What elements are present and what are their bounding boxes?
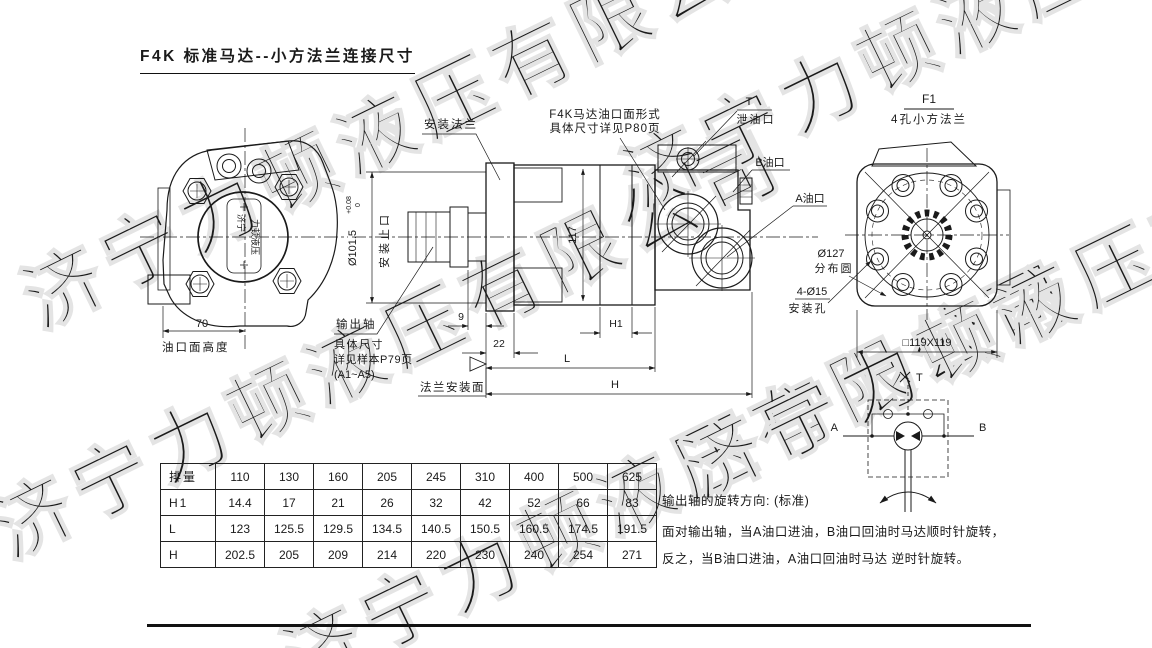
hex-bolt [275,175,303,200]
flange-face-label: 法兰安装面 [420,380,485,394]
table-cell: 26 [363,490,412,516]
flange-view: F1 4孔小方法兰 Ø127 分布圆 4-Ø15 安装孔 [789,92,1011,358]
table-cell: 625 [608,464,657,490]
table-cell: 254 [559,542,608,568]
table-cell: 191.5 [608,516,657,542]
body-lug-bottom [514,268,562,302]
dim-70-label: 油口面高度 [162,340,230,354]
table-row: H 202.5 205 209 214 220 230 240 254 271 [161,542,657,568]
front-view: 济宁 力顿液压 70 油口面高度 [140,128,348,354]
row-label: H1 [161,490,216,516]
leader-line [727,206,827,257]
dim-22-value: 22 [493,338,505,350]
bottom-rule [147,624,1031,627]
dim-9-value: 9 [458,311,464,323]
table-cell: 205 [265,542,314,568]
dim-H-value: H [611,379,619,391]
table-cell: 123 [216,516,265,542]
dim-pilot-label: 安装止口 [377,212,391,268]
rotation-notes-line2: 反之，当B油口进油，A油口回油时马达 逆时针旋转。 [662,546,1042,573]
table-cell: 205 [363,464,412,490]
mount-flange-label: 安装法兰 [424,117,478,131]
right-tab [997,190,1010,285]
b-port-label: B油口 [755,155,784,169]
table-row: 排量 110 130 160 205 245 310 400 500 625 [161,464,657,490]
table-cell: 174.5 [559,516,608,542]
t-port-letter: T [746,96,753,108]
schematic-a-label: A [831,422,839,434]
port-face-note-line1: F4K马达油口面形式 [549,107,661,121]
table-cell: 52 [510,490,559,516]
table-cell: 125.5 [265,516,314,542]
page-title: F4K 标准马达--小方法兰连接尺寸 [140,44,415,74]
table-cell: 230 [461,542,510,568]
shaft-note-line3: 详见样本P79页 [334,352,413,366]
dimension-table: 排量 110 130 160 205 245 310 400 500 625 H… [160,463,657,568]
table-cell: 245 [412,464,461,490]
table-cell: 110 [216,464,265,490]
dim-pilot-tol-upper: +0.08 [346,196,353,214]
hex-bolt [273,269,301,294]
schematic-b-label: B [979,422,986,434]
screw [253,165,266,178]
row-label: H [161,542,216,568]
table-cell: 202.5 [216,542,265,568]
table-cell: 160.5 [510,516,559,542]
table-cell: 150.5 [461,516,510,542]
port-block-top [658,145,736,172]
extension-line [468,270,486,330]
flow-arrow-icon [911,431,920,441]
screw [217,154,241,178]
leader-line [849,276,886,296]
dim-H1-value: H1 [609,318,623,330]
flange-code: F1 [922,92,936,106]
table-cell: 220 [412,542,461,568]
rotation-notes-heading: 输出轴的旋转方向: (标准) [662,488,1042,515]
dim-70-value: 70 [196,318,208,330]
row-label: L [161,516,216,542]
table-cell: 66 [559,490,608,516]
leader-line [733,170,790,192]
rotation-notes: 输出轴的旋转方向: (标准) 面对输出轴，当A油口进油，B油口回油时马达顺时针旋… [662,488,1042,573]
t-port-label: 泄油口 [737,112,776,126]
hex-bolt [183,179,211,204]
body-lug-top [514,168,562,202]
dim-pilot-tol-lower: 0 [355,203,362,207]
datum-triangle-icon [470,357,486,371]
t-port-cross [676,147,700,171]
holes-label: 安装孔 [789,301,828,315]
plugged-port-icon [900,372,910,382]
body-seams [600,165,632,305]
side-port [148,275,190,304]
table-cell: 140.5 [412,516,461,542]
nameplate-brand-city: 济宁 [236,214,247,232]
shaft-note-line4: (A1~A5) [334,369,375,381]
side-view: Ø101.5 +0.08 0 安装止口 117 安装法兰 F4K马达油口面形式 … [334,96,827,398]
table-row: H1 14.4 17 21 26 32 42 52 66 83 [161,490,657,516]
dim-117-value: 117 [567,226,579,244]
schematic-t-label: T [916,372,923,384]
schematic-box [868,400,948,477]
dim-L-value: L [564,353,570,365]
table-cell: 240 [510,542,559,568]
table-cell: 130 [265,464,314,490]
table-cell: 400 [510,464,559,490]
junction-dot [906,412,910,416]
extension-line [486,313,514,358]
screw [247,159,271,183]
table-cell: 209 [314,542,363,568]
table-cell: 17 [265,490,314,516]
top-plate [872,142,976,166]
table-cell: 134.5 [363,516,412,542]
table-cell: 21 [314,490,363,516]
motor-body [514,165,655,305]
rotation-notes-line1: 面对输出轴，当A油口进油，B油口回油时马达顺时针旋转， [662,519,1042,546]
leader-line [422,134,500,180]
a-port-label: A油口 [795,191,824,205]
bolt-circle-label: 分布圆 [815,262,854,275]
flange-subtitle: 4孔小方法兰 [891,112,967,126]
screw [223,160,236,173]
flow-arrow-icon [896,431,905,441]
row-label: 排量 [161,464,216,490]
table-cell: 271 [608,542,657,568]
shaft-note-line1: 输出轴 [336,317,377,331]
table-cell: 129.5 [314,516,363,542]
table-cell: 14.4 [216,490,265,516]
shaft-note-line2: 具体尺寸 [334,337,384,351]
holes-dim: 4-Ø15 [797,286,828,298]
square-dim-value: □119X119 [902,337,951,349]
hex-plug-lines [740,185,752,197]
leader-line [694,111,737,156]
table-cell: 500 [559,464,608,490]
table-row: L 123 125.5 129.5 134.5 140.5 150.5 160.… [161,516,657,542]
table-cell: 83 [608,490,657,516]
dim-pilot-value: Ø101.5 [347,230,359,266]
table-cell: 42 [461,490,510,516]
port-face-note-line2: 具体尺寸详见P80页 [550,121,661,135]
extension-line [486,292,752,398]
table-cell: 310 [461,464,510,490]
nameplate-marks [240,203,248,269]
check-valve-branch [872,414,944,436]
bolt-circle-dim: Ø127 [818,248,845,260]
table-cell: 32 [412,490,461,516]
table-cell: 160 [314,464,363,490]
nameplate-brand-name: 力顿液压 [250,219,261,255]
table-cell: 214 [363,542,412,568]
